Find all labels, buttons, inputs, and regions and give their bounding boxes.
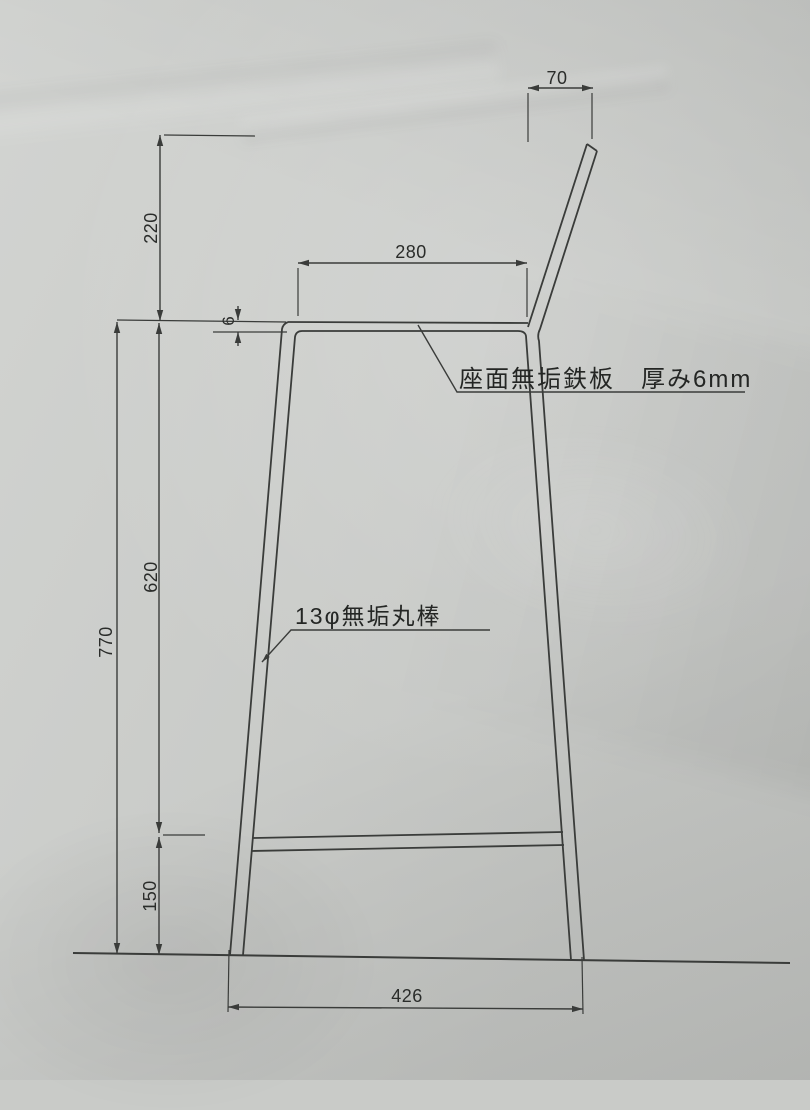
dim-seat-height: 770: [96, 626, 116, 658]
dim-backrest-height: 220: [141, 212, 161, 244]
seat-underside-and-leg-inner-edges: [243, 331, 571, 960]
dimension-lines: [117, 88, 593, 1009]
backrest-inner-edge: [528, 144, 587, 327]
stool-outline: [230, 144, 597, 960]
dim-footrest-height: 150: [140, 880, 160, 912]
backrest-top-bevel: [587, 144, 597, 151]
dim-base-width: 426: [391, 986, 423, 1006]
footrest-top-edge: [253, 832, 563, 838]
dim-backrest-top-width: 70: [546, 68, 567, 88]
stool-technical-drawing: 70 280 220 6 620 770 150 426 座面無垢鉄板 厚み6m…: [0, 0, 810, 1080]
dim-seat-depth: 280: [395, 242, 427, 262]
ground-line: [73, 953, 790, 963]
extension-lines: [117, 93, 592, 1014]
dim-line-426: [228, 1007, 583, 1009]
leader-leg-note: [262, 630, 490, 662]
seat-material-note: 座面無垢鉄板 厚み6mm: [459, 366, 752, 393]
seat-top-edge: [288, 322, 528, 323]
front-leg-outer: [230, 322, 288, 955]
footrest-bottom-edge: [252, 845, 564, 851]
backrest-and-back-leg-outer: [538, 151, 597, 960]
dim-seat-plate-thickness: 6: [219, 316, 238, 325]
dim-seat-to-footrest: 620: [141, 561, 161, 593]
leg-material-note: 13φ無垢丸棒: [295, 603, 442, 629]
